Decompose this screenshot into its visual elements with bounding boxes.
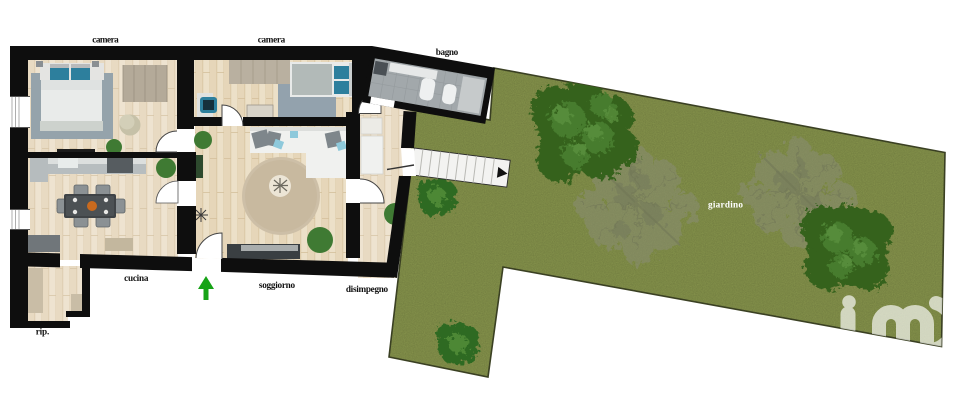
svg-text:disimpegno: disimpegno [346, 284, 389, 294]
svg-text:cucina: cucina [124, 273, 149, 283]
svg-text:camera: camera [92, 34, 119, 44]
svg-text:soggiorno: soggiorno [259, 280, 296, 290]
svg-text:giardino: giardino [708, 200, 743, 210]
svg-text:rip.: rip. [36, 327, 50, 337]
svg-text:bagno: bagno [436, 47, 459, 57]
svg-text:camera: camera [258, 35, 286, 45]
